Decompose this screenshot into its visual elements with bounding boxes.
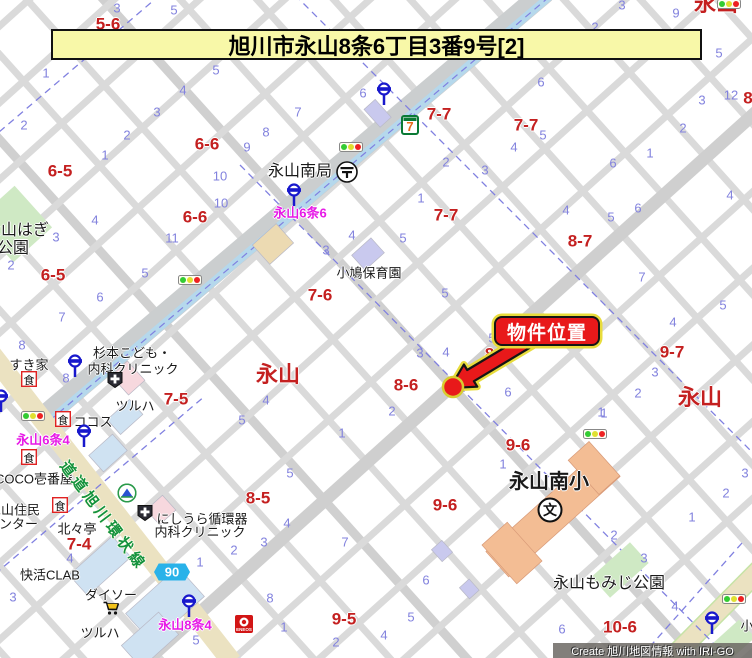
food-icon: 食 (52, 497, 68, 517)
lot-number: 7 (638, 271, 645, 284)
block-label: 7-7 (514, 117, 539, 134)
lot-number: 11 (165, 232, 179, 245)
eneos-icon: ENEOS (235, 615, 253, 637)
lot-number: 2 (442, 156, 449, 169)
seven-eleven-icon: 7 (401, 115, 419, 139)
block-label: 9-7 (660, 344, 685, 361)
address-banner-title: 旭川市永山8条6丁目3番9号[2] (229, 29, 525, 61)
lot-number: 3 (113, 2, 120, 15)
lot-number: 4 (283, 517, 290, 530)
lot-number: 5 (607, 211, 614, 224)
lot-number: 9 (672, 7, 679, 20)
lot-number: 5 (170, 4, 177, 17)
district-label: 永山 (678, 387, 722, 409)
lot-number: 3 (741, 467, 748, 480)
property-location-label: 物件位置 (507, 318, 587, 345)
poi-label: ツルハ (80, 627, 119, 640)
lot-number: 5 (441, 287, 448, 300)
lot-number: 4 (510, 141, 517, 154)
lot-number: 6 (96, 291, 103, 304)
lot-number: 5 (286, 467, 293, 480)
traffic-light-icon (583, 427, 607, 443)
lot-number: 6 (422, 574, 429, 587)
lot-number: 4 (562, 204, 569, 217)
svg-text:食: 食 (24, 373, 35, 387)
block-label: 8 (743, 90, 752, 107)
block-label: 6-6 (195, 136, 220, 153)
lot-number: 5 (212, 64, 219, 77)
hospital-icon (137, 505, 153, 526)
lot-number: 4 (91, 214, 98, 227)
lot-number: 7 (341, 536, 348, 549)
block-label: 7-6 (308, 287, 333, 304)
block-label: 6-6 (183, 209, 208, 226)
lot-number: 2 (20, 119, 27, 132)
lot-number: 6 (537, 76, 544, 89)
district-label: 永山 (256, 364, 300, 386)
poi-label: 内科クリニック (87, 363, 178, 376)
traffic-light-icon (339, 140, 363, 156)
lot-number: 1 (499, 458, 506, 471)
lot-number: 1 (101, 149, 108, 162)
bus-stop-icon (77, 424, 92, 452)
svg-text:食: 食 (24, 451, 35, 465)
block-label: 9-6 (433, 497, 458, 514)
lot-number: 2 (388, 405, 395, 418)
route-badge: 90 (154, 564, 190, 581)
address-banner: 旭川市永山8条6丁目3番9号[2] (51, 29, 702, 60)
poi-label: ツルハ (115, 400, 154, 413)
lot-number: 6 (558, 623, 565, 636)
lot-number: 3 (153, 106, 160, 119)
poi-label: すき家 (9, 359, 48, 372)
traffic-light-icon (178, 273, 202, 289)
bus-stop-icon (377, 82, 392, 110)
lot-number: 1 (646, 147, 653, 160)
lot-number: 3 (52, 231, 59, 244)
lot-number: 6 (609, 157, 616, 170)
post-office-icon (336, 161, 358, 187)
poi-label: 快活CLAB (20, 569, 80, 582)
cart-icon (103, 601, 120, 620)
lot-number: 10 (213, 170, 227, 183)
block-label: 7-7 (434, 207, 459, 224)
bus-stop-label: 永山6条4 (16, 434, 69, 447)
lot-number: 2 (230, 544, 237, 557)
lot-number: 2 (722, 487, 729, 500)
lot-number: 3 (618, 0, 625, 12)
poi-label: 永山もみじ公園 (553, 576, 665, 592)
lot-number: 2 (123, 129, 130, 142)
poi-label: 小鳩保育園 (336, 267, 401, 280)
lot-number: 4 (726, 189, 733, 202)
lot-number: 3 (651, 366, 658, 379)
block-label: 8-6 (394, 377, 419, 394)
map-canvas[interactable]: 5-66-66-56-66-57-77-77-78-77-67-57-48-68… (0, 0, 752, 658)
svg-text:文: 文 (543, 502, 558, 518)
poi-label: 永山住民 (0, 504, 40, 517)
lot-number: 1 (280, 621, 287, 634)
poi-label: 杉本こども・ (93, 347, 171, 360)
lot-number: 9 (243, 141, 250, 154)
block-label: 7-5 (164, 391, 189, 408)
lot-number: 1 (597, 406, 604, 419)
lot-number: 1 (196, 556, 203, 569)
lot-number: 7 (58, 311, 65, 324)
food-icon: 食 (21, 371, 37, 391)
lot-number: 2 (610, 529, 617, 542)
traffic-light-icon (21, 409, 45, 425)
poi-label: センター (0, 518, 38, 531)
lot-number: 8 (266, 592, 273, 605)
block-label: 10-6 (603, 619, 637, 636)
block-label: 6-5 (48, 163, 73, 180)
traffic-light-icon (717, 0, 741, 13)
poi-label: 北々亭 (57, 523, 96, 536)
block-label: 6-5 (41, 267, 66, 284)
lot-number: 4 (66, 552, 73, 565)
bus-stop-icon (68, 354, 83, 382)
mountain-icon (118, 484, 137, 507)
lot-number: 2 (679, 122, 686, 135)
lot-number: 1 (42, 67, 49, 80)
lot-number: 6 (359, 87, 366, 100)
lot-number: 5 (719, 299, 726, 312)
lot-number: 3 (640, 552, 647, 565)
poi-label: 永山はぎ (0, 223, 49, 239)
lot-number: 4 (442, 346, 449, 359)
svg-text:ENEOS: ENEOS (236, 627, 252, 632)
block-label: 8-7 (568, 233, 593, 250)
block-label: 8-5 (246, 490, 271, 507)
school-icon: 文 (537, 497, 563, 527)
map-credit: Create 旭川地図情報 with IRI-GO (553, 643, 752, 658)
bus-stop-icon (705, 611, 720, 639)
block-label: 8-6 (485, 346, 510, 363)
bus-stop-icon (287, 183, 302, 211)
lot-number: 8 (262, 126, 269, 139)
lot-number: 4 (380, 629, 387, 642)
lot-number: 3 (260, 536, 267, 549)
lot-number: 4 (179, 84, 186, 97)
bus-stop-icon (182, 594, 197, 622)
lot-number: 5 (238, 414, 245, 427)
lot-number: 2 (332, 636, 339, 649)
lot-number: 2 (7, 259, 14, 272)
lot-number: 6 (634, 202, 641, 215)
lot-number: 1 (688, 511, 695, 524)
lot-number: 3 (416, 347, 423, 360)
svg-text:7: 7 (406, 119, 413, 134)
food-icon: 食 (21, 449, 37, 469)
lot-number: 3 (481, 164, 488, 177)
poi-label: 公園 (0, 241, 29, 257)
lot-number: 4 (262, 394, 269, 407)
block-label: 9-6 (506, 437, 531, 454)
lot-number: 5 (539, 129, 546, 142)
svg-text:食: 食 (58, 413, 69, 427)
food-icon: 食 (55, 411, 71, 431)
poi-label: 永山南局 (268, 164, 332, 180)
lot-number: 4 (671, 600, 678, 613)
lot-number: 4 (348, 229, 355, 242)
lot-number: 1 (338, 427, 345, 440)
poi-label: 永山南小 (509, 472, 589, 492)
map-credit-text: Create 旭川地図情報 with IRI-GO (571, 643, 734, 658)
poi-label: 小 (740, 620, 752, 633)
lot-number: 5 (399, 232, 406, 245)
lot-number: 3 (698, 94, 705, 107)
lot-number: 5 (141, 267, 148, 280)
block-label: 7-7 (427, 106, 452, 123)
lot-number: 5 (407, 611, 414, 624)
lot-number: 2 (634, 387, 641, 400)
lot-number: 12 (724, 89, 738, 102)
map-labels-layer: 5-66-66-56-66-57-77-77-78-77-67-57-48-68… (0, 0, 752, 658)
poi-label: 内科クリニック (154, 526, 245, 539)
lot-number: 4 (669, 316, 676, 329)
lot-number: 10 (214, 197, 228, 210)
lot-number: 7 (294, 106, 301, 119)
property-location-callout: 物件位置 (494, 316, 600, 346)
lot-number: 8 (18, 339, 25, 352)
lot-number: 3 (322, 244, 329, 257)
traffic-light-icon (722, 592, 746, 608)
bus-stop-icon (0, 389, 9, 417)
lot-number: 1 (417, 192, 424, 205)
hospital-icon (107, 372, 123, 393)
lot-number: 5 (715, 47, 722, 60)
lot-number: 6 (504, 386, 511, 399)
lot-number: 3 (9, 591, 16, 604)
lot-number: 5 (192, 634, 199, 647)
block-label: 9-5 (332, 611, 357, 628)
svg-text:食: 食 (55, 499, 66, 513)
